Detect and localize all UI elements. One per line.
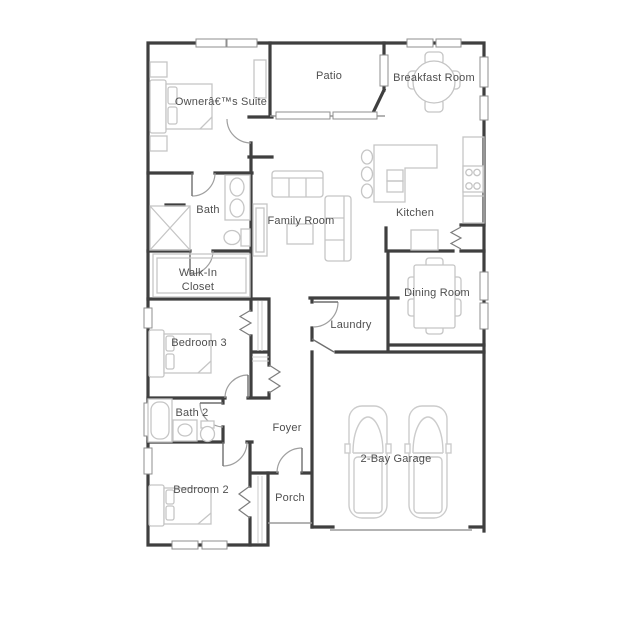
floor-plan-page: Ownerâ€™s Suite Patio Breakfast Room Bat… [0, 0, 640, 640]
room-label-family-room: Family Room [268, 215, 335, 227]
floor-plan-drawing: Ownerâ€™s Suite Patio Breakfast Room Bat… [0, 0, 640, 640]
room-label-breakfast-room: Breakfast Room [393, 72, 475, 84]
room-label-walk-in-closet-line1: Walk-In [179, 267, 217, 279]
room-label-garage: 2-Bay Garage [361, 453, 432, 465]
room-label-kitchen: Kitchen [396, 207, 434, 219]
tv-console-icon [253, 204, 267, 256]
room-label-foyer: Foyer [272, 422, 301, 434]
kitchen-fixtures [362, 137, 485, 250]
room-label-dining-room: Dining Room [404, 287, 470, 299]
room-label-bath-2: Bath 2 [175, 407, 208, 419]
sink-icon [173, 420, 197, 441]
bar-stool-icon [362, 150, 373, 198]
range-icon [463, 166, 483, 192]
room-label-laundry: Laundry [330, 319, 371, 331]
shower-icon [150, 206, 190, 250]
room-label-owners-suite: Ownerâ€™s Suite [175, 96, 267, 108]
room-label-walk-in-closet-line2: Closet [182, 281, 214, 293]
loveseat-icon [325, 196, 351, 261]
kitchen-island-icon [374, 145, 437, 202]
room-label-porch: Porch [275, 492, 305, 504]
room-label-bath: Bath [196, 204, 219, 216]
room-label-bedroom-3: Bedroom 3 [171, 337, 227, 349]
nightstand-icon [150, 136, 167, 151]
room-label-patio: Patio [316, 70, 342, 82]
room-label-bedroom-2: Bedroom 2 [173, 484, 229, 496]
nightstand-icon [150, 62, 167, 77]
bathtub-icon [148, 399, 172, 442]
built-in-desk-icon [411, 230, 438, 250]
bath2-fixtures [148, 399, 215, 442]
toilet-icon [201, 421, 215, 442]
double-sink-vanity-icon [225, 175, 250, 220]
dresser-icon [254, 60, 266, 98]
coffee-table-icon [287, 224, 313, 244]
sofa-icon [272, 171, 323, 197]
toilet-icon [224, 229, 250, 246]
